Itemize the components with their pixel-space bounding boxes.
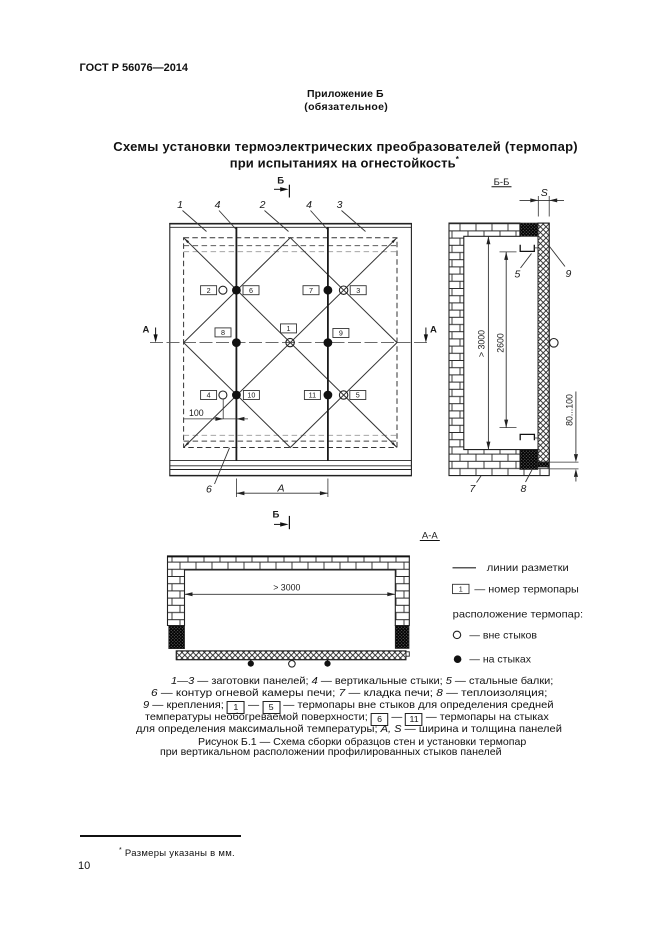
svg-text:> 3000: > 3000: [273, 583, 300, 593]
svg-text:Б: Б: [277, 176, 284, 187]
svg-text:1: 1: [287, 324, 291, 333]
svg-text:линии разметки: линии разметки: [487, 562, 569, 574]
svg-text:Б: Б: [273, 510, 280, 521]
svg-text:А-А: А-А: [422, 531, 439, 542]
svg-text:— на стыках: — на стыках: [469, 654, 531, 666]
svg-text:4: 4: [306, 199, 312, 211]
svg-text:7: 7: [309, 286, 313, 295]
svg-text:3: 3: [337, 199, 343, 211]
svg-text:3: 3: [356, 286, 360, 295]
svg-text:9: 9: [566, 268, 572, 280]
svg-text:10: 10: [247, 391, 255, 400]
svg-text:1: 1: [459, 585, 463, 594]
svg-text:— номер термопары: — номер термопары: [474, 584, 578, 596]
svg-text:5: 5: [356, 391, 360, 400]
svg-text:2: 2: [207, 286, 211, 295]
svg-text:100: 100: [189, 408, 204, 418]
svg-text:6: 6: [249, 286, 253, 295]
svg-text:> 3000: > 3000: [476, 330, 486, 357]
svg-text:расположение термопар:: расположение термопар:: [453, 609, 583, 621]
svg-text:5: 5: [515, 268, 521, 280]
svg-text:4: 4: [215, 199, 221, 211]
svg-text:6: 6: [206, 484, 212, 496]
svg-text:А: А: [143, 325, 150, 336]
svg-text:2600: 2600: [496, 333, 506, 353]
svg-text:80...100: 80...100: [564, 394, 574, 426]
svg-text:9: 9: [339, 329, 343, 338]
svg-text:— вне стыков: — вне стыков: [469, 629, 537, 641]
svg-text:7: 7: [470, 483, 477, 495]
svg-text:S: S: [541, 187, 548, 199]
svg-text:2: 2: [259, 199, 266, 211]
svg-text:11: 11: [309, 391, 316, 400]
svg-text:А: А: [430, 325, 437, 336]
svg-text:8: 8: [521, 483, 527, 495]
svg-text:А: А: [277, 483, 285, 495]
svg-text:8: 8: [221, 328, 225, 337]
svg-text:1: 1: [177, 199, 183, 211]
svg-text:4: 4: [207, 391, 211, 400]
